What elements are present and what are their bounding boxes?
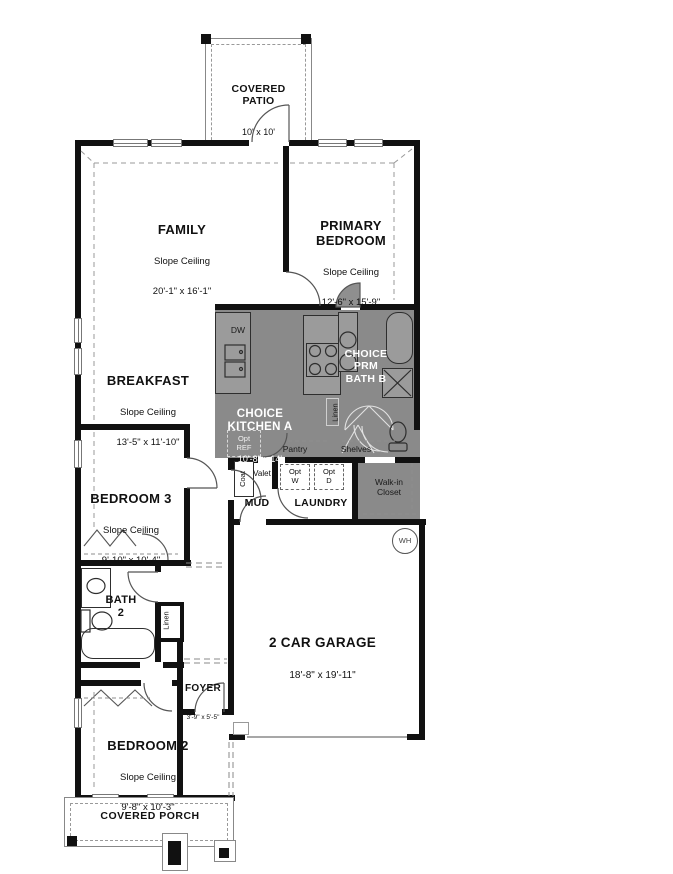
room-bedroom2-name: BEDROOM 2: [86, 738, 210, 753]
valet-label: Valet: [248, 469, 276, 478]
room-breakfast: BREAKFAST Slope Ceiling 13'-5" x 11'-10": [86, 354, 210, 467]
room-kitchen-name: CHOICE KITCHEN A: [212, 408, 308, 435]
linen-bath-label: Linen: [332, 398, 341, 428]
room-patio: COVERED PATIO 10' x 10': [205, 64, 312, 156]
floor-plan: Opt W Opt D Opt REF WH: [0, 0, 673, 874]
room-bedroom3-name: BEDROOM 3: [78, 491, 184, 506]
room-bedroom3-dims: 9'-10" x 10'-4": [78, 555, 184, 566]
room-bath2: BATH 2: [92, 594, 150, 620]
room-family-dims: 20'-1" x 16'-1": [102, 286, 262, 297]
room-foyer-name: FOYER: [180, 683, 226, 695]
room-primary-dims: 12'-6" x 15'-9": [283, 297, 419, 308]
room-laundry: LAUNDRY: [285, 497, 357, 509]
room-bedroom2-ceiling: Slope Ceiling: [86, 772, 210, 783]
room-garage-name: 2 CAR GARAGE: [235, 635, 410, 651]
room-breakfast-name: BREAKFAST: [86, 373, 210, 388]
room-porch: COVERED PORCH: [80, 810, 220, 822]
room-patio-dims: 10' x 10': [205, 127, 312, 138]
room-breakfast-ceiling: Slope Ceiling: [86, 407, 210, 418]
shelves-label: Shelves: [331, 444, 381, 454]
room-primary-bath: CHOICE PRM BATH B: [330, 329, 402, 404]
room-breakfast-dims: 13'-5" x 11'-10": [86, 437, 210, 448]
room-primary-ceiling: Slope Ceiling: [283, 267, 419, 278]
linen-hall-label: Linen: [163, 606, 172, 636]
room-primary-name: PRIMARY BEDROOM: [283, 218, 419, 249]
room-primary-bedroom: PRIMARY BEDROOM Slope Ceiling 12'-6" x 1…: [283, 199, 419, 328]
room-family-name: FAMILY: [102, 222, 262, 237]
room-bedroom3-ceiling: Slope Ceiling: [78, 525, 184, 536]
room-patio-name: COVERED PATIO: [205, 83, 312, 108]
room-mud: MUD: [236, 497, 278, 509]
dw-label: DW: [224, 325, 252, 335]
room-garage: 2 CAR GARAGE 18'-8" x 19'-11": [235, 616, 410, 700]
room-kitchen-dims: 10'-8" x 14': [212, 454, 308, 465]
room-primary-bath-name: CHOICE PRM BATH B: [330, 348, 402, 385]
room-family: FAMILY Slope Ceiling 20'-1" x 16'-1": [102, 203, 262, 316]
room-garage-dims: 18'-8" x 19'-11": [235, 670, 410, 682]
room-family-ceiling: Slope Ceiling: [102, 256, 262, 267]
coat-label: Coat: [239, 464, 249, 494]
pantry-label: Pantry: [270, 444, 320, 454]
walkin-closet-label: Walk-in Closet: [360, 477, 418, 497]
room-bedroom3: BEDROOM 3 Slope Ceiling 9'-10" x 10'-4": [78, 472, 184, 585]
